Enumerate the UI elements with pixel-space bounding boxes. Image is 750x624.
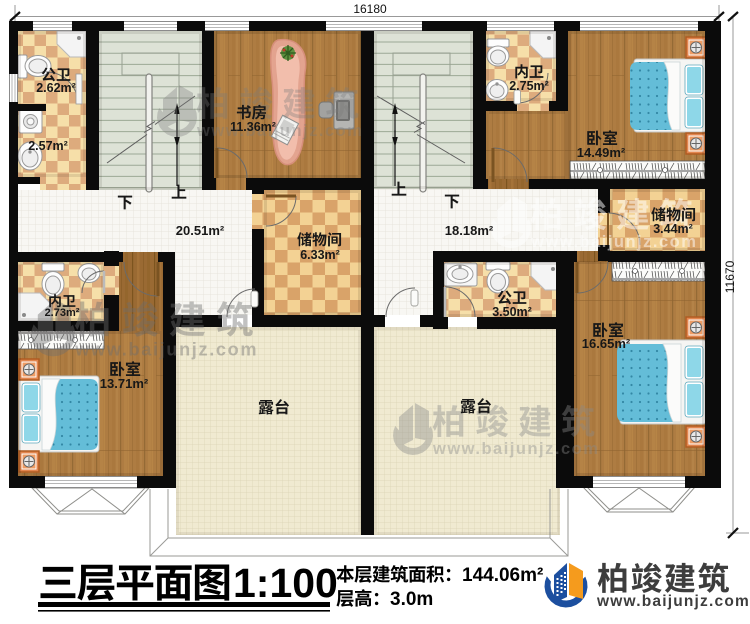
svg-text:2.57m²: 2.57m² — [28, 139, 68, 153]
svg-text:3.50m²: 3.50m² — [492, 305, 532, 319]
svg-text:3.0m: 3.0m — [390, 589, 433, 610]
svg-text:1:100: 1:100 — [233, 560, 338, 606]
svg-text:13.71m²: 13.71m² — [100, 376, 149, 391]
svg-text:16180: 16180 — [353, 2, 387, 16]
svg-text:18.18m²: 18.18m² — [445, 223, 494, 238]
svg-text:20.51m²: 20.51m² — [176, 223, 225, 238]
svg-text:11670: 11670 — [723, 260, 737, 293]
svg-text:6.33m²: 6.33m² — [300, 248, 340, 262]
svg-text:11.36m²: 11.36m² — [230, 120, 276, 134]
svg-text:www.baijunjz.com: www.baijunjz.com — [432, 440, 599, 458]
svg-text:www.baijunjz.com: www.baijunjz.com — [196, 122, 363, 140]
svg-text:3.44m²: 3.44m² — [653, 222, 693, 236]
svg-text:144.06m²: 144.06m² — [462, 565, 543, 586]
svg-text:2.73m²: 2.73m² — [45, 307, 80, 319]
svg-text:www.baijunjz.com: www.baijunjz.com — [74, 339, 258, 359]
svg-text:2.75m²: 2.75m² — [509, 79, 549, 93]
svg-text:16.65m²: 16.65m² — [582, 336, 631, 351]
svg-text:2.62m²: 2.62m² — [36, 81, 76, 95]
svg-text:www.baijunjz.com: www.baijunjz.com — [596, 593, 750, 610]
svg-text:14.49m²: 14.49m² — [577, 145, 626, 160]
